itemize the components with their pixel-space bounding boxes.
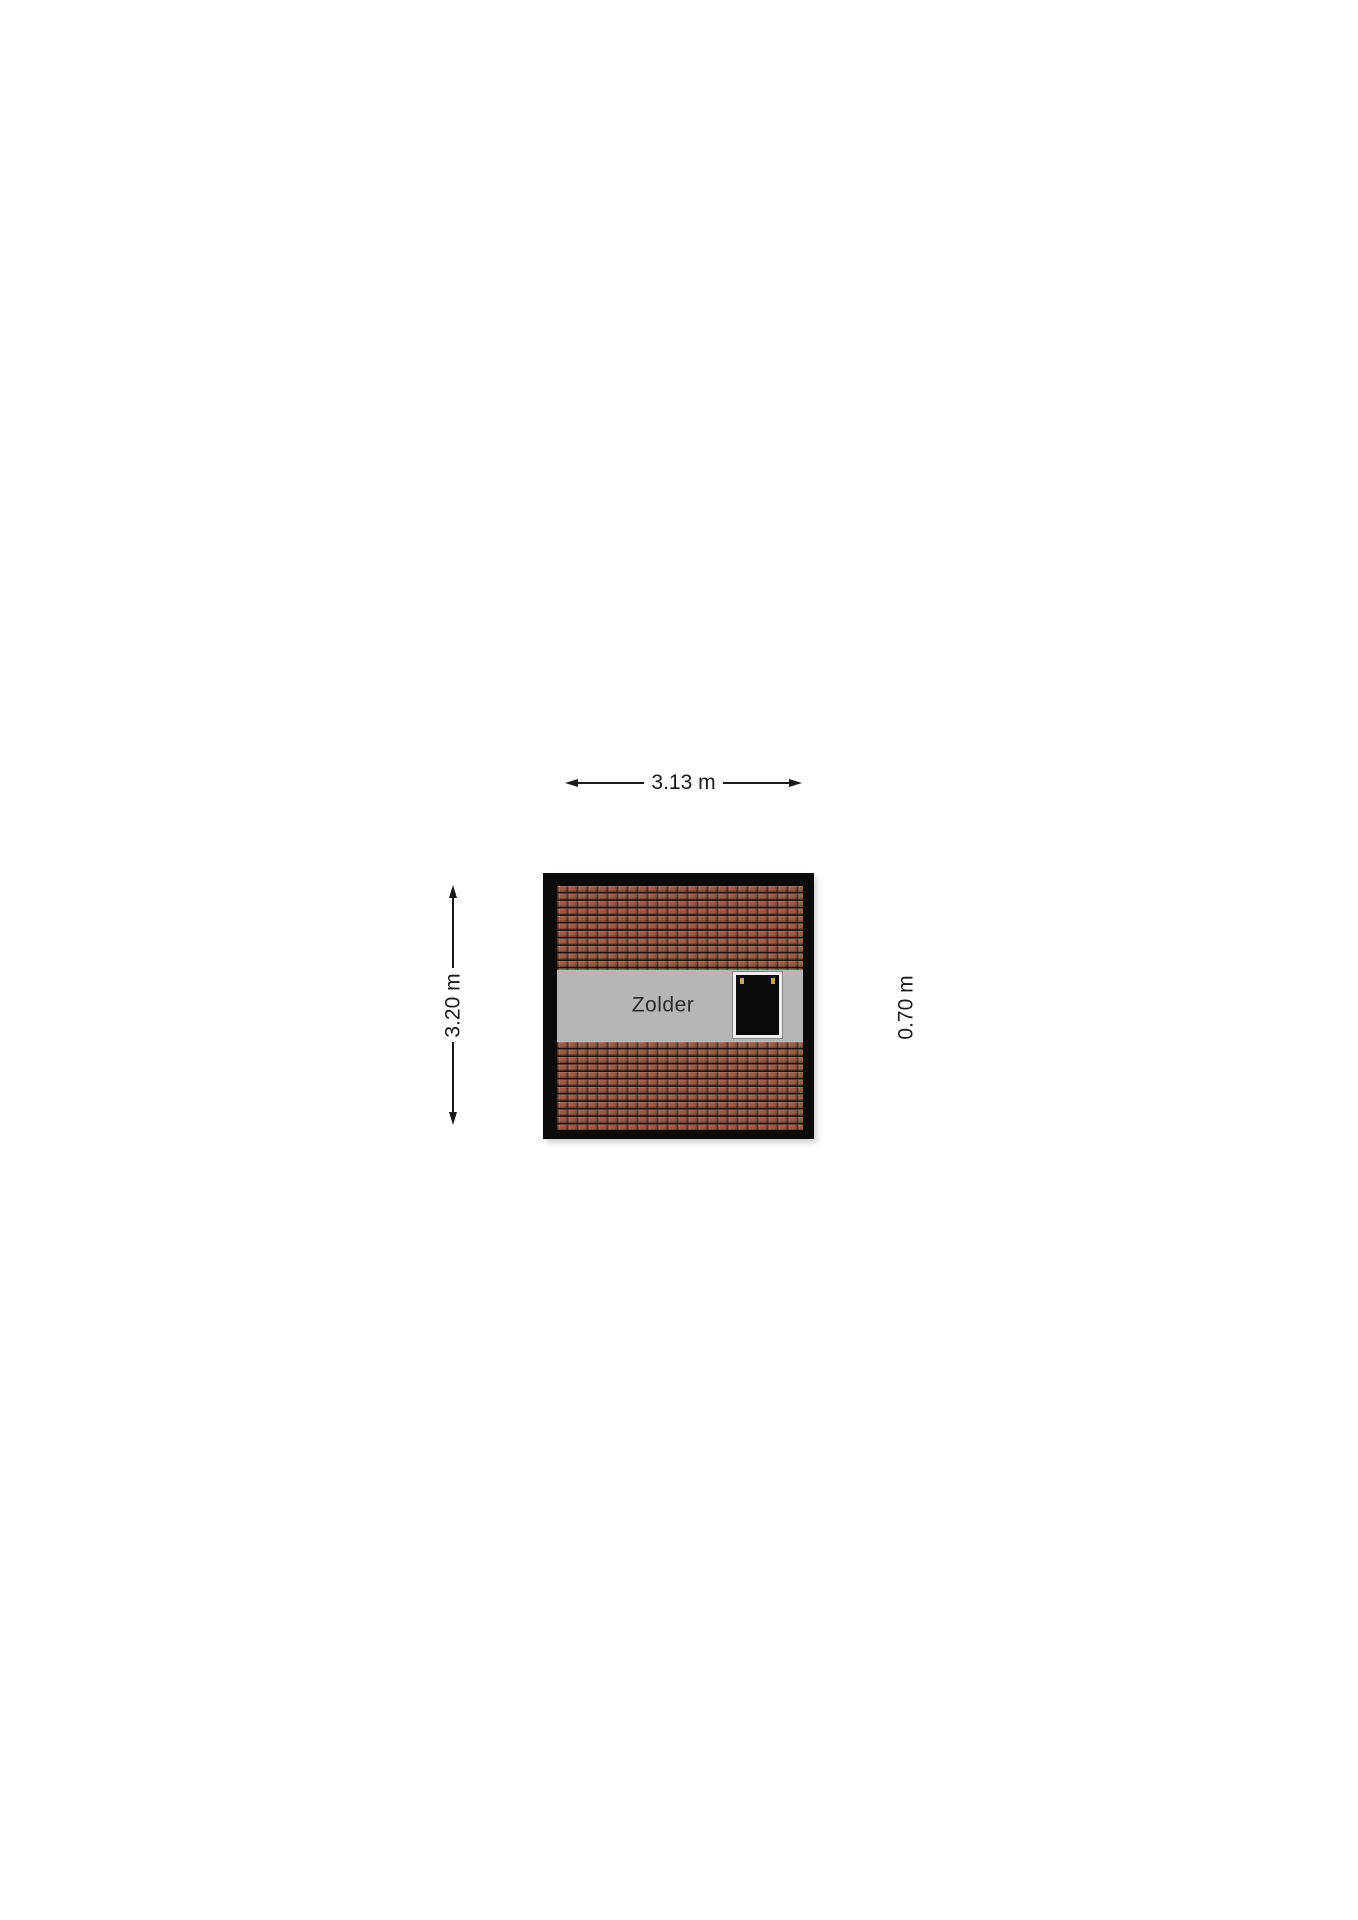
dimension-height-label-wrap: 3.20 m xyxy=(444,968,462,1042)
attic-floor-area: Zolder xyxy=(557,970,803,1042)
roof-tiles-south xyxy=(557,1042,803,1130)
roof-window xyxy=(733,972,782,1038)
arrow-down-icon xyxy=(449,1112,457,1125)
arrow-up-icon xyxy=(449,885,457,898)
window-hinge-icon xyxy=(740,978,744,984)
roof-tiles-north xyxy=(557,886,803,970)
dimension-line xyxy=(452,898,454,968)
dimension-window-label: 0.70 m xyxy=(896,975,917,1039)
plan-interior: Zolder xyxy=(557,886,803,1130)
room-label: Zolder xyxy=(593,994,733,1018)
dimension-line xyxy=(723,782,789,784)
dimension-window: 0.70 m xyxy=(884,961,928,1053)
dimension-width: 3.13 m xyxy=(565,774,802,792)
arrow-right-icon xyxy=(789,779,802,787)
attic-floorplan: Zolder xyxy=(543,873,814,1139)
dimension-line xyxy=(578,782,644,784)
dimension-height-label: 3.20 m xyxy=(443,973,464,1037)
dimension-width-label: 3.13 m xyxy=(644,772,722,793)
arrow-left-icon xyxy=(565,779,578,787)
dimension-line xyxy=(452,1042,454,1112)
dimension-height: 3.20 m xyxy=(444,885,462,1125)
window-hinge-icon xyxy=(771,978,775,984)
floorplan-canvas: 3.13 m 3.20 m Zolder 0.70 m xyxy=(0,0,1358,1920)
